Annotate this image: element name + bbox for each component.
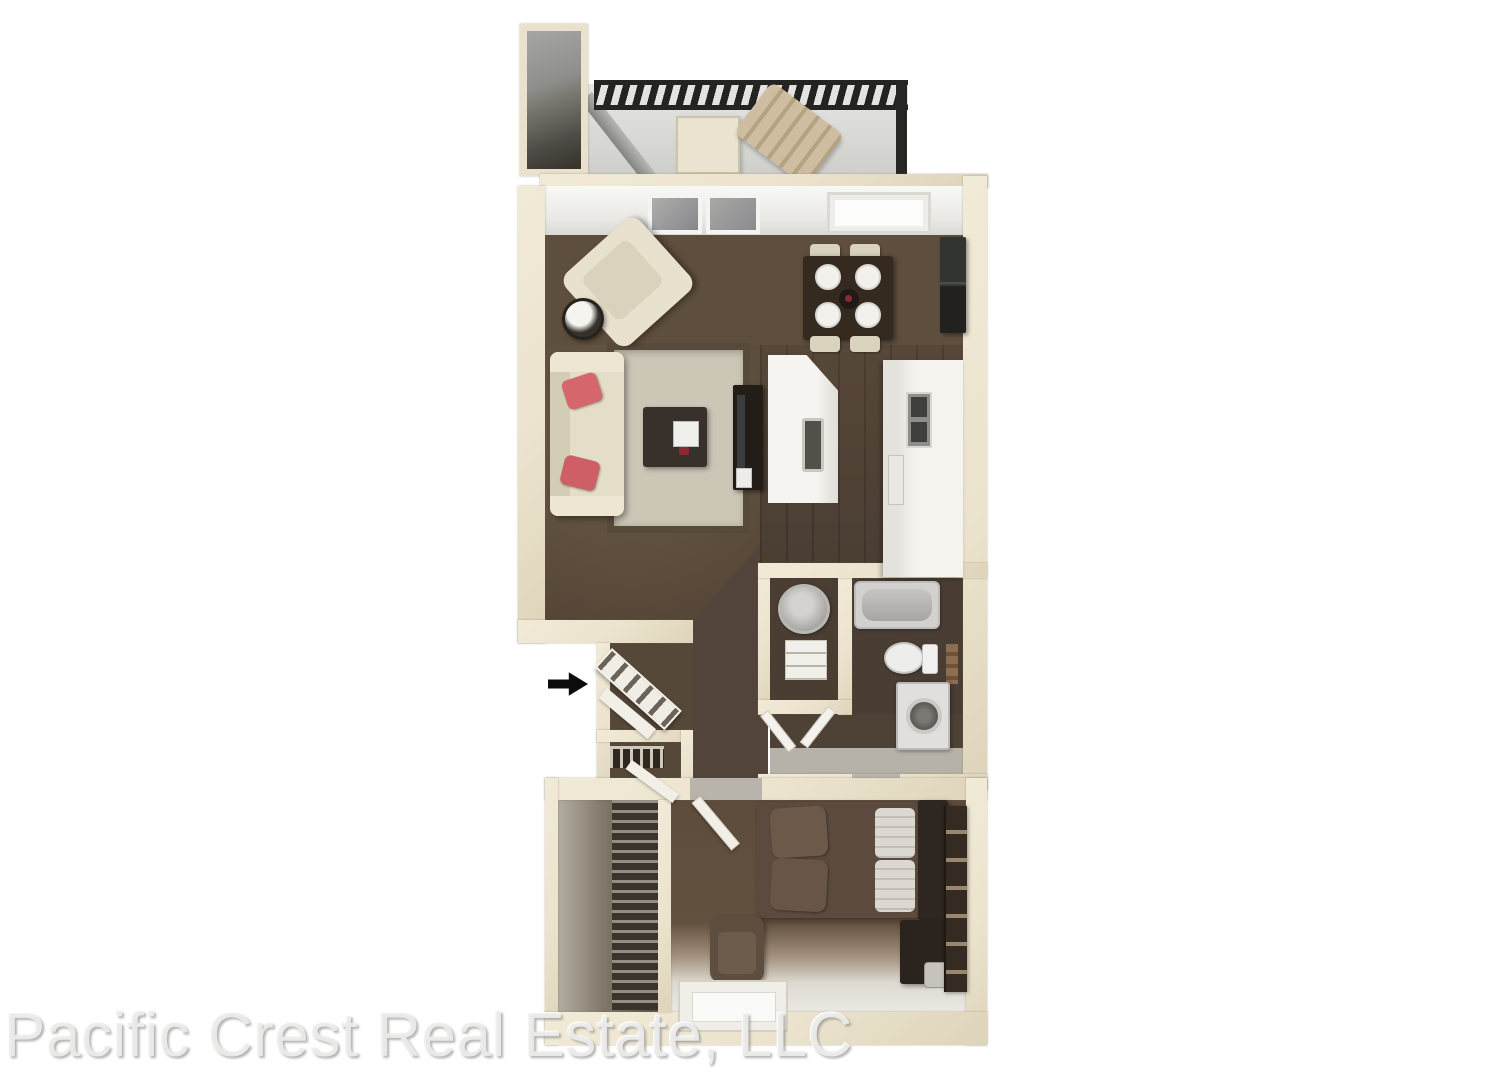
tv-screen: [737, 395, 745, 479]
toilet: [884, 642, 924, 674]
cabinet-pane: [911, 397, 927, 417]
brown-pillow: [769, 805, 828, 859]
right-wall: [963, 176, 987, 790]
living-room-window: [827, 192, 931, 234]
kitchen-sink: [802, 418, 824, 472]
hanging-clothes: [612, 800, 658, 1010]
dinner-plate: [855, 264, 881, 290]
balcony-railing-end: [896, 80, 907, 177]
cooktop-cabinet: [906, 392, 932, 448]
entry-arrow-icon: [548, 670, 588, 698]
stairwell: [520, 24, 588, 176]
bedroom-chair: [710, 916, 764, 982]
cabinet-pane: [911, 422, 927, 442]
washer: [896, 682, 950, 750]
watermark: Pacific Crest Real Estate, LLC: [4, 1000, 853, 1071]
dinner-plate: [855, 302, 881, 328]
refrigerator: [940, 237, 966, 333]
coffee-table: [643, 407, 707, 467]
floor-plan: Pacific Crest Real Estate, LLC: [0, 0, 1508, 1080]
round-side-table: [562, 298, 604, 340]
living-room-bottom-wall: [518, 620, 693, 643]
vanity-cabinet: [785, 640, 827, 680]
white-pillow: [875, 860, 915, 912]
dinner-plate: [815, 302, 841, 328]
media-box: [736, 468, 752, 488]
bedroom-chair-seat: [718, 932, 756, 974]
table-centerpiece: [839, 289, 859, 309]
patio-table: [676, 116, 740, 174]
bedroom-wall-right: [966, 778, 987, 1045]
balcony-railing: [594, 80, 908, 110]
centerpiece-accent: [845, 295, 852, 302]
vanity-nook-wall-right: [838, 578, 852, 715]
bathroom-tile-strip: [770, 748, 963, 776]
dining-chair: [850, 336, 880, 352]
bedroom-wall-top: [545, 778, 987, 800]
vanity-nook-wall-bottom: [758, 700, 852, 714]
closet-wall-right: [658, 800, 671, 1012]
left-wall: [518, 186, 545, 643]
sofa: [550, 352, 624, 516]
dinner-plate: [815, 264, 841, 290]
bed: [757, 802, 919, 918]
white-pillow: [875, 808, 915, 858]
toilet-tank: [922, 644, 938, 674]
vanity-sink: [778, 584, 830, 634]
washer-door: [906, 698, 942, 734]
brown-pillow: [770, 858, 829, 913]
sofa-back: [550, 352, 570, 516]
vanity-nook-wall-left: [758, 565, 770, 715]
coffee-table-tray: [673, 421, 699, 447]
bathtub: [854, 581, 940, 629]
lower-cabinet: [888, 455, 904, 505]
dining-chair: [810, 336, 840, 352]
sofa-armrest: [550, 496, 624, 516]
balcony-door-pane-right: [706, 194, 760, 234]
sofa-armrest: [550, 352, 624, 372]
balcony-door-pane-left: [648, 194, 702, 234]
dresser: [944, 806, 967, 992]
towel-rack: [946, 644, 958, 684]
hallway-floor: [693, 622, 768, 790]
coffee-table-accent: [679, 447, 689, 455]
bathtub-basin: [862, 589, 932, 621]
